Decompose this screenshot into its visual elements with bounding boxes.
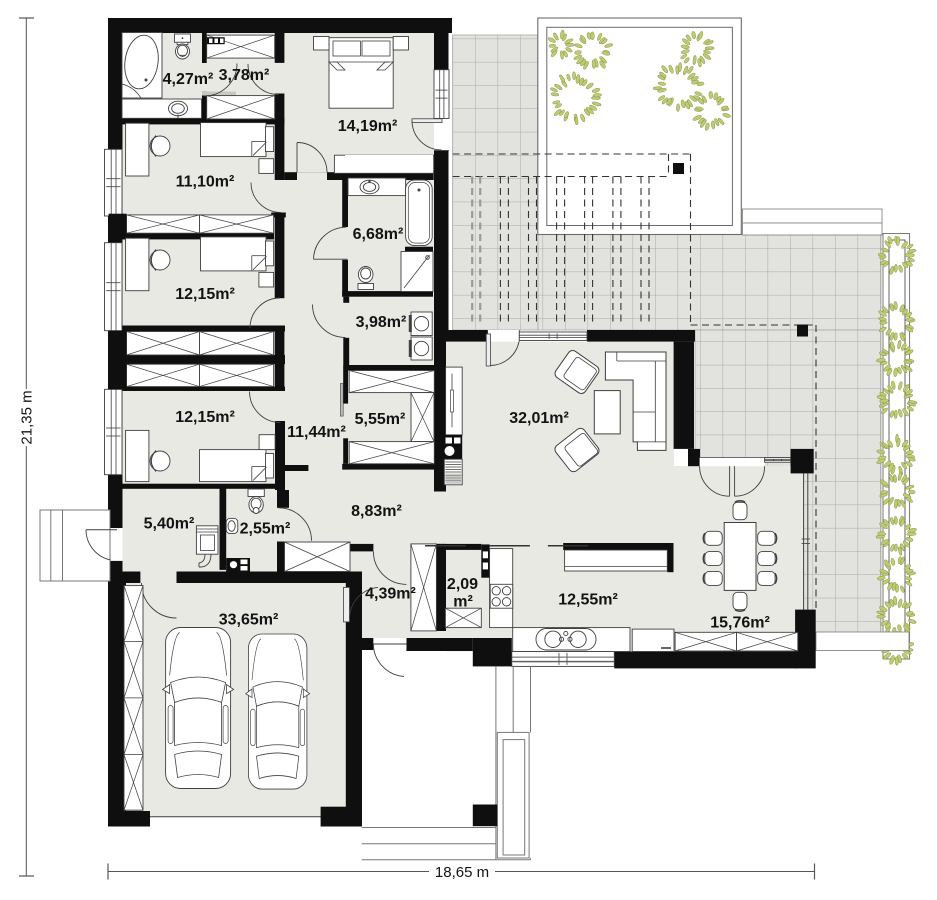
svg-text:12,15m²: 12,15m² [175, 286, 235, 303]
svg-text:2,55m²: 2,55m² [240, 521, 291, 538]
svg-text:8,83m²: 8,83m² [351, 503, 402, 520]
svg-text:15,76m²: 15,76m² [710, 615, 770, 632]
svg-text:14,19m²: 14,19m² [338, 118, 398, 135]
svg-text:33,65m²: 33,65m² [219, 612, 279, 629]
svg-text:32,01m²: 32,01m² [509, 410, 569, 427]
svg-text:11,44m²: 11,44m² [287, 424, 346, 441]
svg-text:18,65 m: 18,65 m [435, 864, 489, 881]
svg-text:11,10m²: 11,10m² [176, 174, 235, 191]
svg-text:3,78m²: 3,78m² [219, 67, 270, 84]
svg-text:2,09: 2,09 [447, 576, 478, 593]
svg-text:5,40m²: 5,40m² [144, 516, 195, 533]
svg-text:21,35 m: 21,35 m [19, 390, 36, 444]
svg-text:m²: m² [453, 594, 473, 611]
svg-text:6,68m²: 6,68m² [353, 226, 404, 243]
svg-text:3,98m²: 3,98m² [356, 314, 407, 331]
svg-text:4,27m²: 4,27m² [163, 71, 214, 88]
svg-text:5,55m²: 5,55m² [355, 411, 406, 428]
svg-text:12,55m²: 12,55m² [558, 592, 618, 609]
svg-text:12,15m²: 12,15m² [175, 409, 235, 426]
svg-text:4,39m²: 4,39m² [365, 586, 416, 603]
